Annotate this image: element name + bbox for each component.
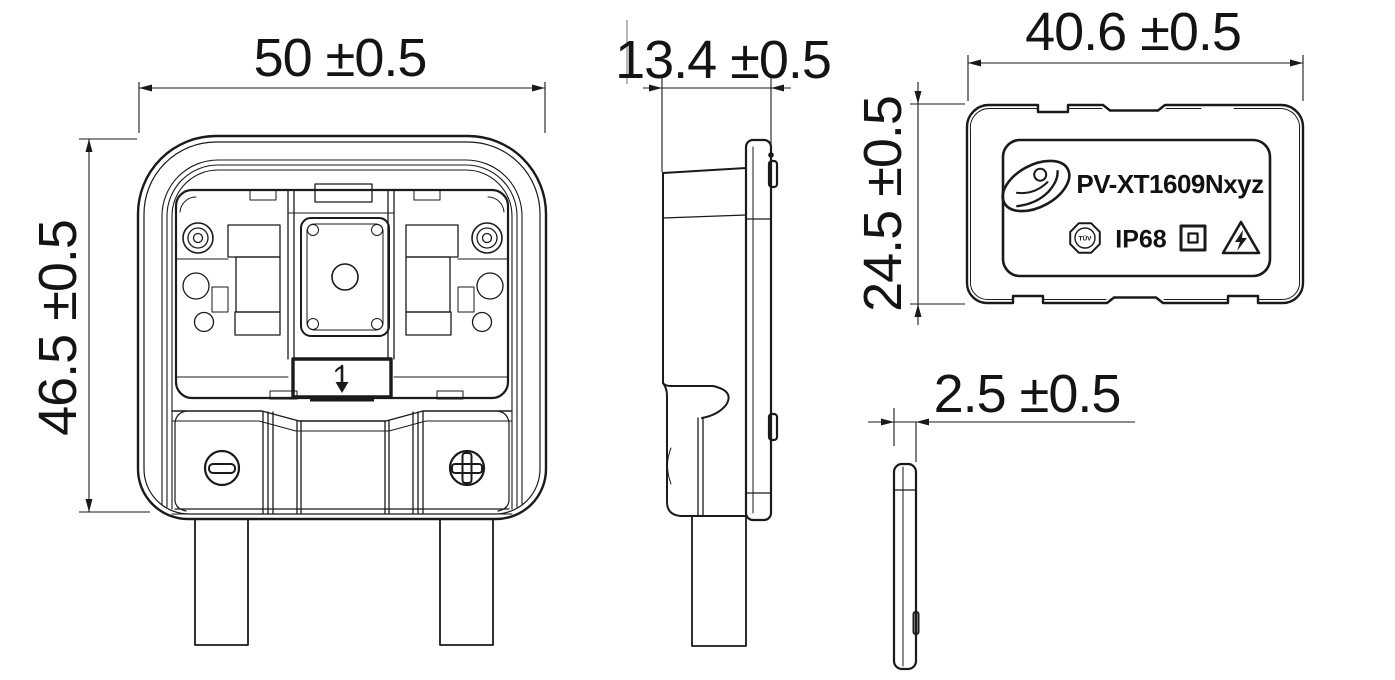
diode-hole — [332, 264, 358, 290]
dim-back-width: 40.6 ±0.5 — [968, 2, 1303, 101]
dim-front-height: 46.5 ±0.5 — [28, 139, 150, 512]
electrical-hazard-icon — [1223, 222, 1259, 253]
flange-profile — [894, 464, 916, 669]
class-ii-insulation-icon — [1181, 226, 1205, 250]
dim-side-depth-label: 13.4 ±0.5 — [615, 30, 831, 90]
dim-back-height-label: 24.5 ±0.5 — [853, 96, 913, 312]
ip-rating-label: IP68 — [1115, 226, 1167, 254]
cable-side — [692, 516, 746, 646]
flange-edge-view: 2.5 ±0.5 — [868, 364, 1135, 669]
terminal-block-right — [406, 225, 474, 335]
product-code-label: PV-XT1609Nxyz — [1076, 169, 1264, 199]
front-view: 50 ±0.5 46.5 ±0.5 — [28, 28, 546, 645]
diode-pad — [301, 218, 389, 336]
dim-side-depth: 13.4 ±0.5 — [615, 30, 831, 172]
cable-right — [440, 519, 493, 645]
side-view: 13.4 ±0.5 — [615, 20, 831, 646]
dim-front-width: 50 ±0.5 — [139, 28, 545, 133]
technical-drawing: 50 ±0.5 46.5 ±0.5 — [0, 0, 1395, 680]
negative-terminal-screw-icon — [205, 451, 239, 485]
dim-flange-thickness: 2.5 ±0.5 — [868, 364, 1135, 462]
brand-logo-icon — [994, 151, 1077, 222]
dim-front-width-label: 50 ±0.5 — [254, 28, 427, 88]
cable-left — [195, 519, 248, 645]
mount-plate — [746, 140, 771, 520]
screw-post-right — [472, 223, 502, 253]
back-view: PV-XT1609Nxyz TÜV IP68 40.6 ±0.5 — [853, 2, 1303, 325]
dim-flange-thickness-label: 2.5 ±0.5 — [934, 364, 1121, 424]
positive-terminal-screw-icon — [450, 451, 484, 485]
terminal-block-left — [212, 225, 280, 335]
down-arrow-icon — [336, 366, 349, 393]
port-marker-box — [293, 359, 391, 402]
tuv-mark-label: TÜV — [1079, 234, 1093, 243]
dim-back-width-label: 40.6 ±0.5 — [1025, 2, 1241, 62]
dim-front-height-label: 46.5 ±0.5 — [28, 220, 88, 436]
tuv-certification-icon: TÜV — [1070, 223, 1100, 253]
cable-clamp-band — [172, 411, 512, 514]
dim-back-height: 24.5 ±0.5 — [853, 82, 965, 325]
screw-post-left — [183, 223, 213, 253]
